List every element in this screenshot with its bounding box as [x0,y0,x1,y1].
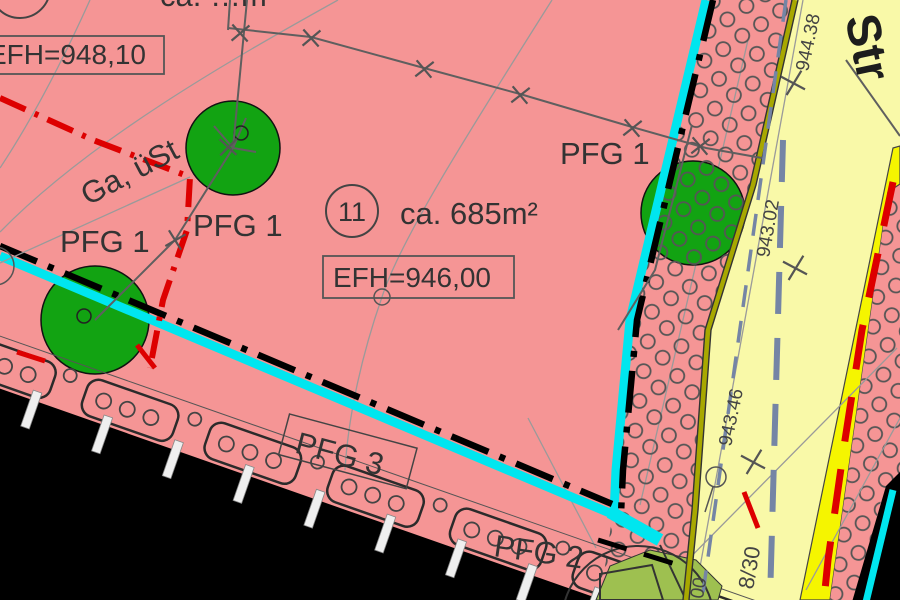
efh-label-main: EFH=946,00 [323,256,514,298]
svg-text:11: 11 [338,197,366,227]
svg-text:EFH=946,00: EFH=946,00 [333,262,491,293]
pfg1-label-right: PFG 1 [560,136,650,171]
pfg1-label-left: PFG 1 [60,224,150,259]
parcel-area-label: ca. 685m² [400,196,538,231]
svg-text:EFH=948,10: EFH=948,10 [0,39,146,70]
efh-label-top: EFH=948,10 [0,36,164,74]
area-label-partial: ca. …m² [160,0,277,13]
pfg1-label-mid: PFG 1 [193,208,283,243]
plan-drawing: ca. …m² EFH=948,10 Ga, üSt PFG 1 PFG 1 P… [0,0,900,600]
site-plan-map: ca. …m² EFH=948,10 Ga, üSt PFG 1 PFG 1 P… [0,0,900,600]
